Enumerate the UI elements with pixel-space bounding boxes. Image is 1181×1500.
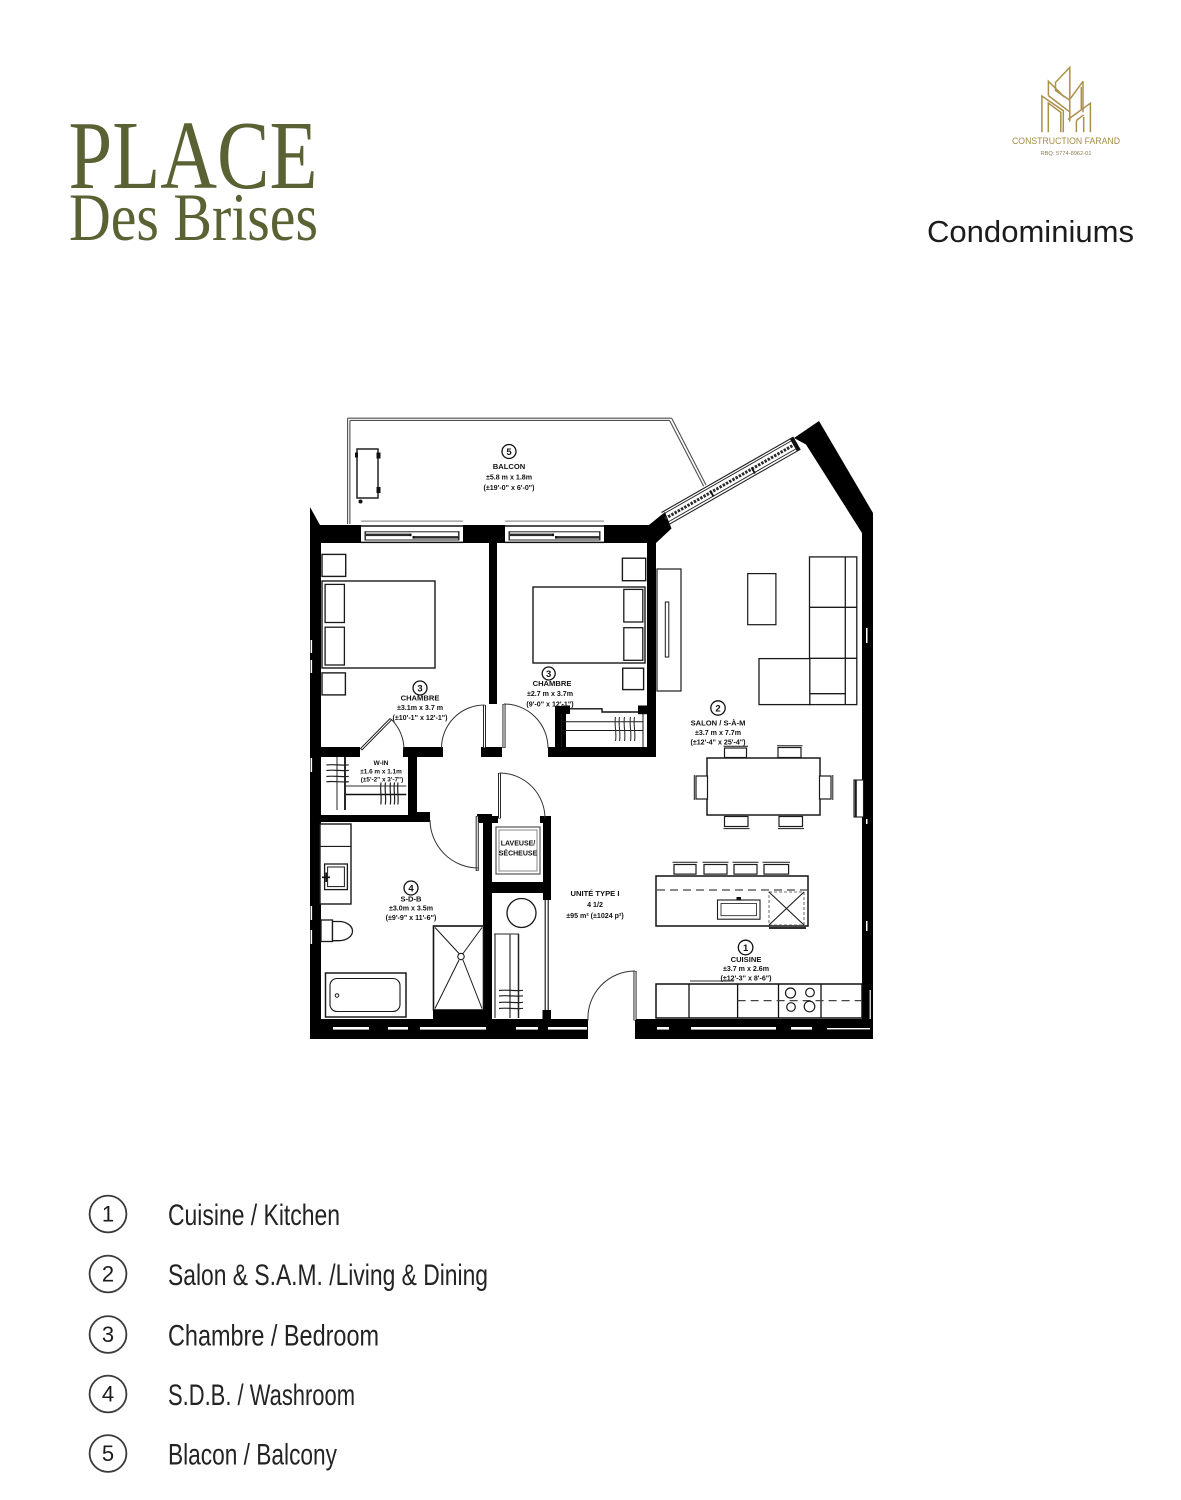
svg-text:±3.7 m x 7.7m: ±3.7 m x 7.7m — [695, 729, 741, 737]
svg-text:±1.6 m x 1.1m: ±1.6 m x 1.1m — [360, 768, 402, 775]
svg-text:±3.7 m x 2.6m: ±3.7 m x 2.6m — [723, 965, 769, 973]
svg-text:Des Brises: Des Brises — [69, 179, 318, 255]
svg-text:(±10'-1" x 12'-1"): (±10'-1" x 12'-1") — [392, 714, 448, 722]
svg-text:BALCON: BALCON — [493, 462, 525, 471]
svg-text:LAVEUSE/: LAVEUSE/ — [501, 841, 536, 848]
svg-text:CHAMBRE: CHAMBRE — [533, 679, 572, 688]
svg-text:UNITÉ TYPE I: UNITÉ TYPE I — [571, 889, 620, 898]
svg-text:CUISINE: CUISINE — [731, 955, 762, 964]
svg-text:±5.8 m x 1.8m: ±5.8 m x 1.8m — [486, 474, 532, 482]
svg-text:4 1/2: 4 1/2 — [587, 901, 603, 909]
svg-text:±2.7 m x 3.7m: ±2.7 m x 3.7m — [527, 690, 573, 698]
svg-text:(±9'-9" x 11'-6"): (±9'-9" x 11'-6") — [386, 914, 437, 922]
svg-text:5: 5 — [102, 1441, 114, 1466]
svg-text:Salon & S.A.M. /Living & Dinin: Salon & S.A.M. /Living & Dining — [168, 1259, 488, 1292]
svg-text:5: 5 — [506, 447, 512, 458]
svg-text:S.D.B. / Washroom: S.D.B. / Washroom — [168, 1379, 355, 1412]
svg-text:(±12'-4" x 25'-4"): (±12'-4" x 25'-4") — [690, 739, 746, 747]
svg-text:S-D-B: S-D-B — [400, 895, 422, 904]
svg-text:1: 1 — [743, 943, 749, 954]
svg-text:3: 3 — [102, 1322, 114, 1347]
svg-text:Chambre / Bedroom: Chambre / Bedroom — [168, 1320, 379, 1353]
svg-text:CONSTRUCTION FARAND: CONSTRUCTION FARAND — [1012, 136, 1120, 147]
svg-text:(±19'-0" x 6'-0"): (±19'-0" x 6'-0") — [483, 484, 535, 492]
svg-text:1: 1 — [102, 1202, 114, 1227]
svg-text:2: 2 — [102, 1262, 114, 1287]
svg-text:(±12'-3" x 8'-6"): (±12'-3" x 8'-6") — [720, 975, 772, 983]
svg-text:SALON / S-À-M: SALON / S-À-M — [691, 719, 746, 728]
svg-text:SÉCHEUSE: SÉCHEUSE — [499, 849, 538, 858]
svg-text:±3.0m x 3.5m: ±3.0m x 3.5m — [389, 905, 433, 913]
svg-text:(±5'-2" x 3'-7"): (±5'-2" x 3'-7") — [361, 777, 403, 784]
svg-text:W-IN: W-IN — [374, 760, 389, 767]
svg-text:±3.1m x 3.7 m: ±3.1m x 3.7 m — [397, 704, 443, 712]
svg-text:CHAMBRE: CHAMBRE — [401, 694, 440, 703]
svg-text:±95 m² (±1024 p²): ±95 m² (±1024 p²) — [566, 912, 624, 920]
svg-text:2: 2 — [715, 704, 720, 715]
svg-text:Condominiums: Condominiums — [927, 214, 1134, 249]
svg-text:Blacon / Balcony: Blacon / Balcony — [168, 1439, 337, 1472]
svg-text:RBQ: 5774-8962-01: RBQ: 5774-8962-01 — [1041, 151, 1092, 157]
svg-text:Cuisine / Kitchen: Cuisine / Kitchen — [168, 1199, 340, 1232]
svg-text:4: 4 — [102, 1382, 114, 1407]
svg-text:4: 4 — [408, 884, 414, 895]
